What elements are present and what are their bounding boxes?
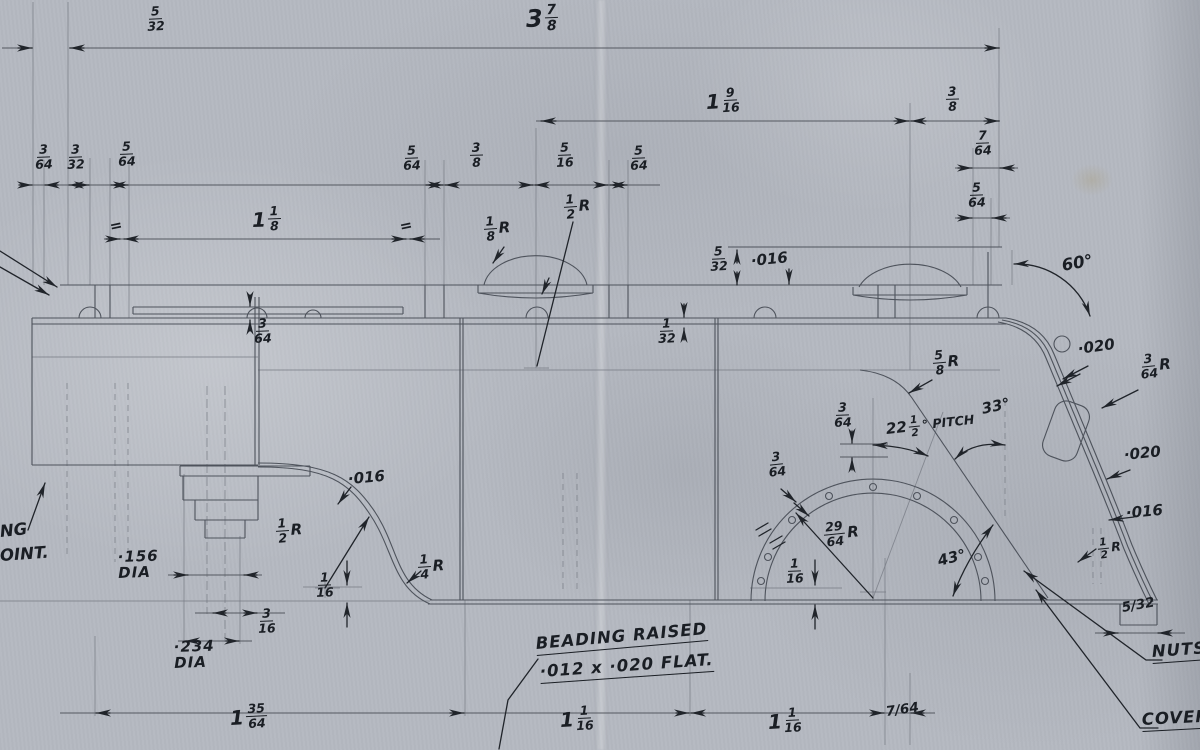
equal-mark-right: = (398, 218, 413, 235)
note-nuts: NUTS (1151, 640, 1200, 663)
dim-1-16-arch: 116 (784, 557, 806, 585)
dim-5-32-top: 532 (144, 5, 167, 33)
dim-5-64-left: 564 (116, 140, 138, 168)
annotation-labels: 532 378 1916 38 764 564 364 332 564 564 … (0, 0, 1200, 750)
pitch-22-5: 2212° PITCH (885, 409, 976, 441)
radius-3-64: 364R (1137, 351, 1173, 381)
radius-1-2-scurve: 12R (273, 516, 303, 545)
equal-mark-left: = (108, 218, 123, 235)
dim-5-64-right: 564 (966, 181, 988, 209)
radius-1-8: 18R (481, 214, 511, 243)
val-016-dome: ·016 (750, 250, 788, 269)
dim-1-16-scurve: 116 (314, 571, 336, 599)
dim-1-1-8: 118 (252, 205, 284, 233)
dia-156: ·156DIA (117, 549, 159, 581)
dim-3-8-top: 38 (944, 85, 962, 113)
dim-1-35-64: 13564 (229, 702, 270, 731)
angle-43: 43° (936, 547, 967, 568)
dim-1-1-16-b: 1116 (767, 706, 804, 735)
dim-7-64-top: 764 (972, 129, 994, 157)
radius-5-8: 58R (930, 348, 961, 377)
dim-3-64-arch: 364 (765, 450, 789, 479)
dim-5-16-mid: 516 (554, 141, 576, 169)
angle-60: 60° (1061, 253, 1095, 275)
dim-5-64-mid2: 564 (628, 144, 650, 172)
dim-1-1-16-a: 1116 (559, 704, 596, 733)
radius-29-64: 2964R (821, 518, 861, 549)
dim-5-64-mid1: 564 (401, 144, 423, 172)
val-016-slope: ·016 (1125, 503, 1163, 521)
dim-3-8-mid: 38 (468, 141, 486, 169)
dia-234: ·234DIA (173, 639, 215, 671)
radius-1-4: 14R (415, 552, 445, 581)
val-016-scurve: ·016 (347, 469, 385, 487)
dim-1-9-16: 1916 (705, 86, 742, 115)
dim-5-32-dome: 532 (707, 245, 730, 273)
note-cover: COVER (1141, 708, 1200, 731)
radius-1-2-dome: 12R (561, 192, 591, 221)
dim-3-64-pitch: 364 (832, 401, 854, 429)
note-beading-line1: BEADING RAISED (535, 621, 708, 655)
radius-1-2-slope: 12R (1095, 535, 1122, 560)
dim-3-7-8: 378 (525, 3, 560, 34)
dim-3-32-left: 332 (65, 143, 87, 171)
dim-3-64-left: 364 (33, 143, 55, 171)
blueprint-canvas: 532 378 1916 38 764 564 364 332 564 564 … (0, 0, 1200, 750)
angle-33: 33° (980, 396, 1011, 417)
val-020-upper: ·020 (1077, 337, 1116, 357)
note-beading-line2: ·012 x ·020 FLAT. (539, 652, 714, 684)
note-edge-1: NG (0, 521, 28, 540)
dim-3-16: 316 (256, 607, 278, 635)
dim-7-64-bottom: 7/64 (885, 701, 920, 719)
dim-1-32: 132 (656, 317, 678, 345)
dim-5-32-rear: 5/32 (1121, 596, 1156, 615)
dim-3-64-strip: 364 (252, 317, 274, 345)
val-020-lower: ·020 (1123, 444, 1161, 463)
note-edge-2: OINT. (0, 545, 49, 565)
